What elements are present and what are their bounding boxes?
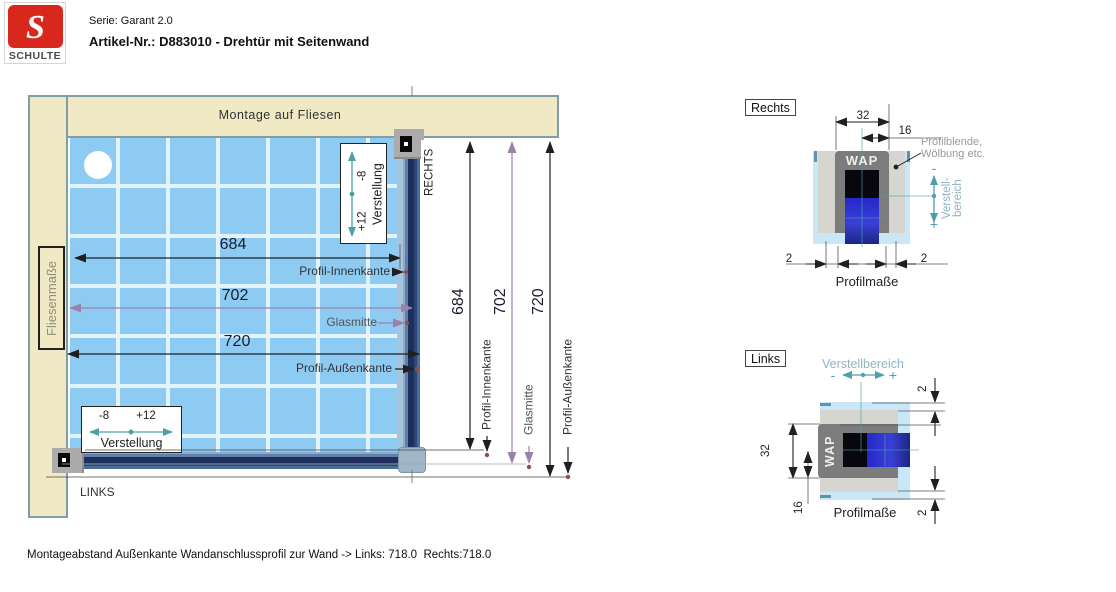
links-glass-blue (867, 433, 910, 467)
hinge-detail (404, 142, 408, 146)
verstellung-bottom-plus: +12 (132, 410, 160, 422)
links-dim-2-bottom: 2 (916, 503, 930, 523)
label-glasmitte-v: Glasmitte (520, 377, 537, 443)
dim-684-horizontal: 684 (203, 236, 263, 254)
label-profil-innenkante-v: Profil-Innenkante (478, 336, 495, 434)
links-plus: + (886, 367, 900, 383)
links-glass-black (843, 433, 867, 467)
rechts-note: Profilblende, Wölbung etc. (921, 136, 985, 160)
dim-720-horizontal: 720 (207, 333, 267, 351)
links-profilmasse-caption: Profilmaße (825, 505, 905, 520)
rechts-wap-label: WAP (835, 153, 889, 168)
rechts-verstell-line2: bereich (952, 166, 964, 230)
rechts-plus: + (927, 216, 941, 232)
series-label: Serie: Garant 2.0 (89, 15, 173, 27)
verstellung-top-plus: +12 (356, 202, 369, 240)
wall-corner-patch (30, 97, 66, 136)
label-glasmitte-h: Glasmitte (300, 315, 377, 329)
links-minus: - (826, 367, 840, 383)
detail-rechts-title: Rechts (745, 99, 796, 116)
rechts-glass-black (845, 170, 879, 198)
hinge-detail (62, 458, 66, 462)
brand-logo: S SCHULTE (4, 2, 66, 64)
dim-684-vertical: 684 (450, 276, 468, 328)
fliesenmasse-box: Fliesenmaße (38, 246, 65, 350)
logo-red-square: S (8, 5, 63, 48)
rechts-band-right (888, 151, 905, 233)
rechts-dim-16: 16 (893, 125, 917, 137)
montage-label: Montage auf Fliesen (150, 108, 410, 122)
rechts-minus: - (927, 160, 941, 176)
profile-vertical (403, 133, 420, 470)
rechts-dim-2-left: 2 (781, 253, 797, 265)
dim-702-vertical: 702 (492, 276, 510, 328)
technical-drawing-page: S SCHULTE Serie: Garant 2.0 Artikel-Nr.:… (0, 0, 1116, 592)
rechts-tick-left (814, 151, 817, 162)
links-band-bottom (820, 476, 898, 492)
links-dim-32: 32 (758, 436, 774, 466)
detail-links-title: Links (745, 350, 786, 367)
rechts-side-label: RECHTS (421, 140, 438, 204)
links-dim-16: 16 (791, 494, 807, 522)
dim-720-vertical: 720 (530, 276, 548, 328)
logo-letter: S (8, 6, 63, 49)
rechts-note-line1: Profilblende, (921, 136, 985, 148)
article-title: Artikel-Nr.: D883010 - Drehtür mit Seite… (89, 34, 369, 49)
links-tick-top (820, 403, 831, 406)
rechts-tick-right (907, 151, 910, 162)
dim-702-horizontal: 702 (205, 287, 265, 305)
profile-horizontal (60, 452, 420, 469)
rechts-dim-32: 32 (845, 110, 881, 122)
hinge-icon-top (400, 136, 412, 152)
rechts-profilmasse-caption: Profilmaße (827, 274, 907, 289)
fliesenmasse-label: Fliesenmaße (41, 249, 62, 347)
verstellung-bottom-minus: -8 (92, 410, 116, 422)
corner-connector (398, 447, 426, 473)
links-wap-label: WAP (821, 429, 839, 473)
wall-circle-marker (84, 151, 112, 179)
rechts-note-line2: Wölbung etc. (921, 148, 985, 160)
brand-name: SCHULTE (5, 50, 65, 62)
label-profil-innenkante-h: Profil-Innenkante (262, 264, 390, 278)
links-dim-2-top: 2 (916, 379, 930, 399)
verstellung-top-minus: -8 (356, 160, 369, 192)
label-profil-aussenkante-v: Profil-Außenkante (559, 331, 576, 443)
verstellung-bottom-label: Verstellung (84, 436, 179, 450)
verstellung-top-label: Verstellung (370, 148, 385, 240)
links-tick-bottom (820, 495, 831, 498)
links-side-label: LINKS (80, 485, 115, 499)
rechts-dim-2-right: 2 (916, 253, 932, 265)
rechts-band-left (818, 151, 835, 233)
rechts-glass-blue (845, 198, 879, 244)
hinge-icon-left (58, 453, 70, 467)
label-profil-aussenkante-h: Profil-Außenkante (257, 361, 392, 375)
montageabstand-note: Montageabstand Außenkante Wandanschlussp… (27, 549, 491, 561)
